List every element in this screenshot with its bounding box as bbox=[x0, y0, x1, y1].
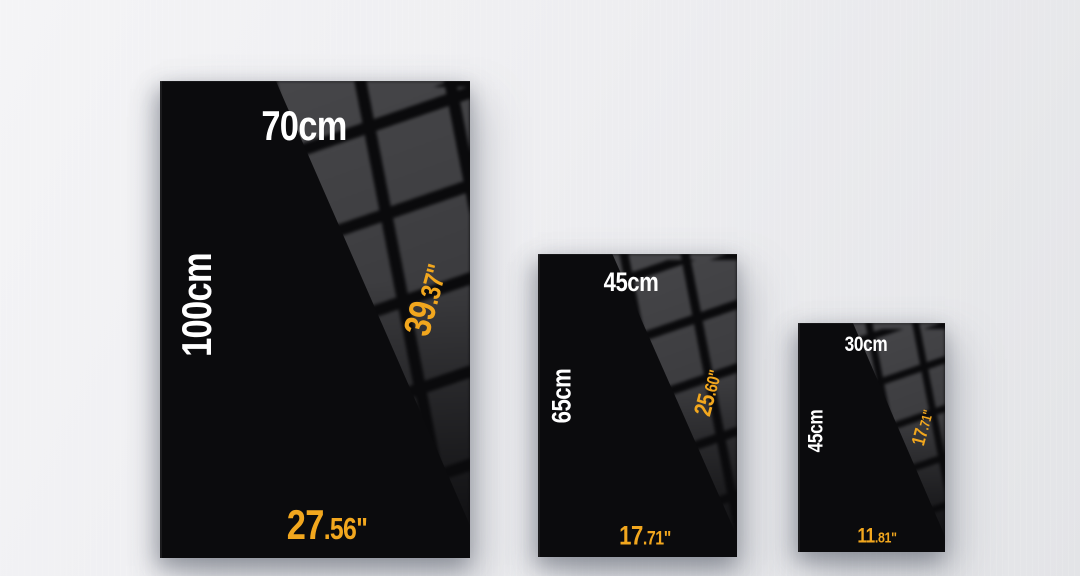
width-label-inches: 27.56" bbox=[287, 504, 367, 546]
width-label-cm: 45cm bbox=[603, 269, 658, 296]
poster-30x45cm: 30cm 45cm 17.71" 11.81" bbox=[798, 323, 945, 552]
inches-integer: 11 bbox=[858, 525, 876, 546]
height-label-cm: 100cm bbox=[176, 253, 218, 357]
inches-integer: 17 bbox=[620, 522, 644, 549]
inches-fraction: .56" bbox=[324, 515, 367, 545]
inches-fraction: .81" bbox=[875, 530, 897, 545]
width-label-cm: 30cm bbox=[845, 334, 888, 355]
width-label-cm: 70cm bbox=[261, 105, 346, 147]
inches-fraction: .37" bbox=[414, 262, 451, 307]
inches-fraction: .71" bbox=[643, 529, 671, 548]
poster-70x100cm: 70cm 100cm 39.37" 27.56" bbox=[160, 81, 470, 558]
poster-45x65cm: 45cm 65cm 25.60" 17.71" bbox=[538, 254, 737, 557]
inches-integer: 27 bbox=[287, 504, 324, 546]
width-label-inches: 11.81" bbox=[858, 525, 897, 546]
height-label-cm: 45cm bbox=[805, 409, 826, 452]
inches-fraction: .71" bbox=[918, 409, 937, 432]
height-label-cm: 65cm bbox=[548, 369, 575, 424]
wall-background: 70cm 100cm 39.37" 27.56" 45cm 65cm 25.60… bbox=[0, 0, 1080, 576]
width-label-inches: 17.71" bbox=[620, 522, 672, 549]
